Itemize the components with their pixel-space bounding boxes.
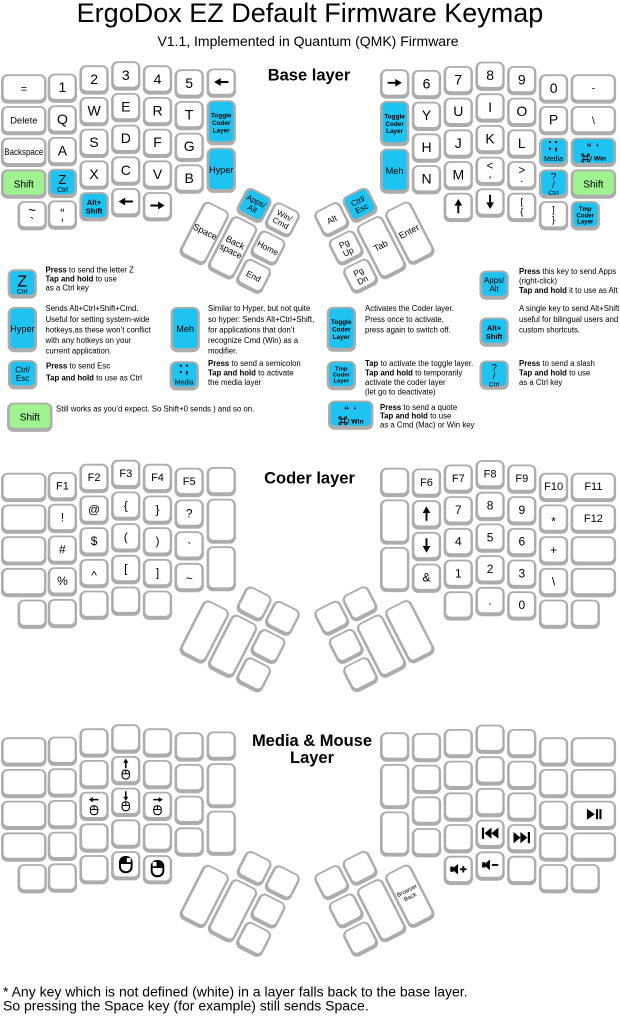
svg-text:Ctrl: Ctrl	[548, 190, 559, 197]
svg-text:G: G	[184, 138, 195, 154]
svg-text:Alt: Alt	[489, 285, 499, 294]
svg-text:“: “	[586, 142, 591, 154]
svg-text:0: 0	[550, 80, 558, 96]
svg-text:A: A	[58, 143, 68, 159]
svg-text:F2: F2	[88, 472, 101, 484]
svg-text:‘: ‘	[353, 405, 356, 417]
svg-text:9: 9	[518, 72, 526, 88]
svg-text:F9: F9	[515, 473, 528, 485]
svg-text:3: 3	[122, 67, 130, 83]
svg-text:/ Win: / Win	[348, 419, 364, 426]
svg-text:Backspace: Backspace	[4, 147, 43, 158]
svg-text:Ctrl: Ctrl	[57, 187, 68, 194]
svg-text:2: 2	[90, 71, 98, 87]
svg-text:/ Win: / Win	[590, 156, 606, 163]
svg-text:Shift: Shift	[583, 179, 603, 190]
svg-text:Still works as you’d expect. S: Still works as you’d expect. So Shift+0 …	[56, 405, 254, 414]
svg-text:Toggle: Toggle	[384, 114, 405, 121]
svg-text:`: `	[187, 540, 191, 554]
svg-text:8: 8	[487, 499, 494, 513]
svg-text:F4: F4	[151, 472, 164, 484]
svg-text:F1: F1	[56, 481, 69, 493]
svg-text:5: 5	[185, 75, 193, 91]
svg-text:ErgoDox EZ Default Firmware Ke: ErgoDox EZ Default Firmware Keymap	[77, 0, 544, 28]
svg-text:1: 1	[59, 79, 67, 95]
svg-text:-: -	[592, 83, 595, 94]
svg-text:1: 1	[455, 566, 462, 580]
svg-text:}: }	[552, 215, 555, 226]
svg-text:Ctrl: Ctrl	[489, 381, 500, 388]
svg-text:8: 8	[486, 67, 494, 83]
svg-text:@: @	[88, 502, 100, 516]
svg-text:Layer: Layer	[333, 334, 351, 341]
svg-text:5: 5	[487, 530, 494, 544]
svg-text:V: V	[153, 166, 163, 182]
svg-text:4: 4	[455, 535, 462, 549]
svg-text:Shift: Shift	[86, 207, 103, 216]
svg-text:(: (	[124, 530, 128, 544]
svg-text:So pressing the Space key (for: So pressing the Space key (for example) …	[3, 998, 369, 1014]
svg-text:+: +	[550, 543, 557, 557]
svg-text:{: {	[520, 206, 523, 217]
svg-text:Media: Media	[544, 156, 563, 163]
svg-text:4: 4	[154, 71, 162, 87]
svg-text:Layer: Layer	[386, 128, 404, 135]
svg-text:.: .	[520, 173, 523, 185]
svg-text:Coder: Coder	[212, 120, 231, 127]
svg-text:#: #	[59, 542, 66, 556]
svg-text:‘: ‘	[596, 142, 599, 154]
svg-text:Layer: Layer	[213, 127, 231, 134]
svg-text:7: 7	[455, 503, 462, 517]
svg-text:Activates the Coder layer.Pres: Activates the Coder layer.Press once to …	[365, 304, 454, 334]
svg-text:F7: F7	[452, 473, 465, 485]
svg-text:H: H	[421, 139, 431, 155]
svg-text:`: `	[30, 215, 34, 230]
svg-text:S: S	[89, 134, 98, 150]
svg-text:L: L	[518, 135, 526, 151]
svg-text:Z: Z	[58, 172, 66, 187]
svg-text:^: ^	[91, 569, 97, 583]
svg-text:Esc: Esc	[16, 374, 29, 383]
svg-text:6: 6	[423, 76, 431, 92]
svg-text:Meh: Meh	[176, 324, 194, 334]
svg-text:“: “	[344, 405, 349, 417]
svg-text:K: K	[485, 131, 495, 147]
svg-text:Shift: Shift	[486, 332, 503, 341]
svg-text:{: {	[124, 498, 128, 512]
svg-text:‘: ‘	[61, 215, 64, 230]
svg-text:Q: Q	[57, 111, 68, 127]
svg-text:3: 3	[518, 566, 525, 580]
svg-text:2: 2	[487, 562, 494, 576]
svg-text:,: ,	[488, 169, 491, 181]
svg-text:.: .	[488, 594, 491, 608]
svg-text:F8: F8	[484, 469, 497, 481]
svg-text:Ctrl: Ctrl	[17, 289, 28, 296]
svg-text:R: R	[152, 103, 162, 119]
svg-text:P: P	[549, 112, 558, 128]
svg-text:F12: F12	[584, 513, 603, 525]
svg-text:Layer: Layer	[577, 219, 594, 226]
svg-text:): )	[156, 534, 160, 548]
svg-text:F5: F5	[183, 476, 196, 488]
svg-text:6: 6	[518, 535, 525, 549]
svg-text:Base layer: Base layer	[268, 67, 351, 85]
svg-text:Shift: Shift	[20, 413, 40, 424]
svg-text:Y: Y	[422, 107, 432, 123]
svg-text:Hyper: Hyper	[10, 324, 35, 334]
svg-text:N: N	[421, 171, 431, 187]
svg-text:\: \	[592, 116, 595, 127]
svg-text:=: =	[21, 84, 27, 96]
svg-text:9: 9	[518, 503, 525, 517]
svg-text:?: ?	[186, 506, 193, 520]
svg-text:X: X	[89, 166, 99, 182]
svg-text:J: J	[455, 135, 462, 151]
svg-text:F6: F6	[420, 477, 433, 489]
svg-text:0: 0	[518, 598, 525, 612]
svg-text:Coder: Coder	[385, 121, 404, 128]
svg-text:V1.1, Implemented in Quantum (: V1.1, Implemented in Quantum (QMK) Firmw…	[157, 33, 458, 49]
svg-text:F10: F10	[544, 481, 563, 493]
svg-text:}: }	[155, 502, 159, 516]
svg-text:Shift: Shift	[14, 179, 34, 190]
svg-text:D: D	[121, 130, 131, 146]
svg-text:%: %	[57, 574, 68, 588]
svg-text:U: U	[453, 103, 463, 119]
svg-text:Coder layer: Coder layer	[264, 470, 355, 488]
svg-text:Delete: Delete	[10, 116, 37, 127]
svg-text:W: W	[87, 103, 101, 119]
svg-text:Meh: Meh	[386, 166, 404, 176]
svg-text:]: ]	[156, 566, 159, 580]
svg-text:$: $	[91, 534, 98, 548]
svg-text:Toggle: Toggle	[331, 319, 352, 326]
svg-text:F: F	[153, 134, 162, 150]
svg-text:~: ~	[186, 572, 193, 586]
svg-text:F3: F3	[119, 468, 132, 480]
svg-text:Layer: Layer	[334, 379, 350, 385]
svg-text:Coder: Coder	[332, 327, 351, 334]
svg-text:C: C	[121, 162, 131, 178]
svg-text:Media: Media	[175, 380, 194, 387]
svg-text:*: *	[551, 514, 556, 528]
svg-text:F11: F11	[584, 481, 602, 493]
svg-text:T: T	[185, 107, 194, 123]
svg-text:Hyper: Hyper	[209, 165, 234, 175]
svg-text:7: 7	[454, 72, 462, 88]
svg-text:B: B	[185, 170, 194, 186]
svg-text:Media & Mouse: Media & Mouse	[252, 732, 372, 750]
svg-text:M: M	[452, 167, 464, 183]
svg-text:!: !	[61, 511, 64, 525]
svg-text:Toggle: Toggle	[211, 113, 232, 120]
svg-text:&: &	[422, 570, 430, 584]
svg-text:E: E	[121, 99, 130, 115]
svg-text:O: O	[516, 103, 527, 119]
svg-text:Layer: Layer	[290, 749, 335, 767]
svg-text:I: I	[488, 99, 492, 115]
